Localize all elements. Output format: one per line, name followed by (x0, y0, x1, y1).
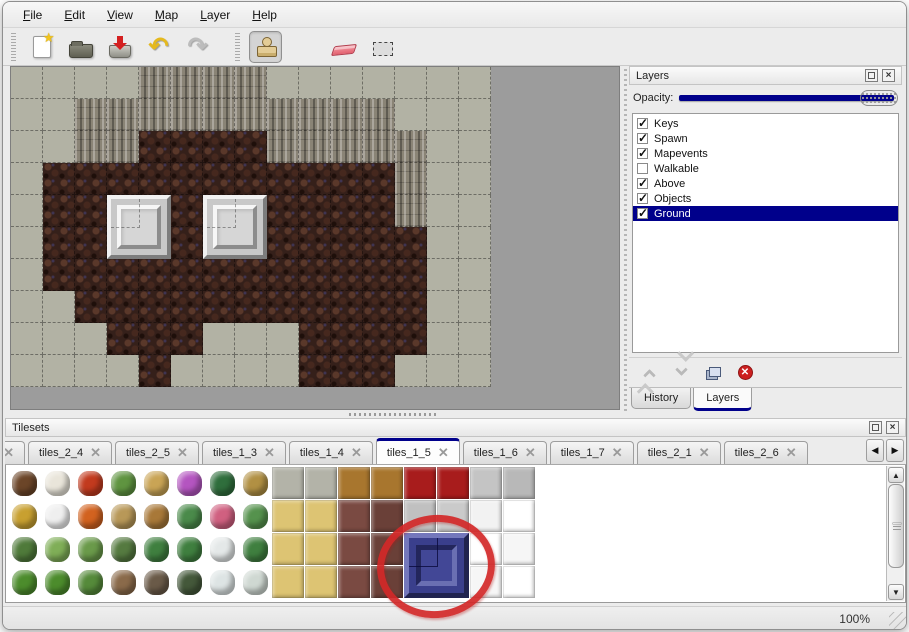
tileset-sprite-cell[interactable] (74, 533, 106, 565)
scale-rock-tile (459, 67, 491, 99)
eraser-icon (330, 43, 356, 55)
brown-floor-tile (331, 355, 363, 387)
brown-floor-tile (299, 163, 331, 195)
brown-floor-tile (139, 131, 171, 163)
cliff-wall-tile (171, 67, 203, 99)
brown-floor-tile (299, 227, 331, 259)
close-tab-icon[interactable]: ✕ (786, 448, 797, 458)
brown-floor-tile (171, 227, 203, 259)
toolbar-handle[interactable] (11, 33, 16, 61)
brown-floor-tile (235, 163, 267, 195)
layer-row-walkable[interactable]: Walkable (633, 161, 898, 176)
brown-floor-tile (299, 259, 331, 291)
map-tile-grid (11, 67, 491, 387)
layer-name: Above (654, 178, 685, 190)
cliff-wall-tile (395, 131, 427, 163)
tileset-sprite-cell[interactable] (8, 467, 40, 499)
cliff-wall-tile (363, 99, 395, 131)
stamp-button[interactable] (249, 31, 282, 63)
layer-action-buttons: ✕ (629, 357, 902, 387)
brown-floor-tile (139, 163, 171, 195)
brown-floor-tile (331, 323, 363, 355)
tileset-tab-tiles_1_4[interactable]: tiles_1_4✕ (289, 441, 373, 464)
scale-rock-tile (427, 163, 459, 195)
move-layer-up-icon[interactable] (639, 363, 659, 383)
scale-rock-tile (43, 291, 75, 323)
brown-floor-tile (43, 163, 75, 195)
tileset-sprite-cell[interactable] (41, 533, 73, 565)
scale-rock-tile (427, 291, 459, 323)
scale-rock-tile (267, 67, 299, 99)
brown-floor-tile (331, 195, 363, 227)
scroll-tabs-right-icon[interactable]: ▶ (886, 439, 904, 462)
tileset-tile-cell[interactable] (503, 500, 535, 532)
cliff-wall-tile (235, 99, 267, 131)
tab-label: tiles_2_1 (648, 447, 692, 459)
scale-rock-tile (427, 355, 459, 387)
scale-rock-tile (43, 355, 75, 387)
tileset-sprite-cell[interactable] (8, 500, 40, 532)
brown-floor-tile (43, 195, 75, 227)
scale-rock-tile (11, 355, 43, 387)
vertical-splitter[interactable] (621, 66, 629, 411)
layer-visibility-checkbox[interactable] (637, 148, 648, 159)
cliff-wall-tile (203, 99, 235, 131)
layer-row-keys[interactable]: Keys (633, 116, 898, 131)
tileset-sprite-cell[interactable] (140, 533, 172, 565)
brown-floor-tile (235, 131, 267, 163)
scale-rock-tile (11, 131, 43, 163)
layer-name: Objects (654, 193, 691, 205)
tileset-sprite-cell[interactable] (140, 500, 172, 532)
scale-rock-tile (395, 67, 427, 99)
brown-floor-tile (235, 291, 267, 323)
scale-rock-tile (267, 323, 299, 355)
tileset-tab-tiles_1_5[interactable]: tiles_1_5✕ (376, 438, 460, 464)
tileset-tab-bar: 3✕tiles_2_4✕tiles_2_5✕tiles_1_3✕tiles_1_… (5, 438, 906, 465)
layer-row-mapevents[interactable]: Mapevents (633, 146, 898, 161)
tab-label: tiles_2_6 (735, 447, 779, 459)
scale-rock-tile (11, 195, 43, 227)
close-tab-icon[interactable]: ✕ (612, 448, 623, 458)
tileset-sprite-cell[interactable] (107, 500, 139, 532)
brown-floor-tile (395, 227, 427, 259)
tileset-sprite-cell[interactable] (173, 566, 205, 598)
layer-row-ground[interactable]: Ground (633, 206, 898, 221)
undo-button[interactable]: ↶ (142, 31, 175, 63)
scale-rock-tile (427, 323, 459, 355)
brown-floor-tile (299, 355, 331, 387)
tilesets-panel-titlebar: Tilesets × (5, 418, 906, 437)
tab-label: tiles_2_4 (39, 447, 83, 459)
cliff-wall-tile (395, 195, 427, 227)
menu-map[interactable]: Map (145, 5, 188, 25)
tileset-scrollbar[interactable]: ▲ ▼ (886, 466, 904, 601)
cliff-wall-tile (331, 99, 363, 131)
tileset-tile-cell[interactable] (272, 500, 304, 532)
opacity-label: Opacity: (633, 92, 673, 104)
cliff-wall-tile (107, 99, 139, 131)
brown-floor-tile (363, 355, 395, 387)
brown-floor-tile (139, 291, 171, 323)
tilesets-panel-title: Tilesets (12, 422, 50, 434)
tileset-tile-cell[interactable] (272, 467, 304, 499)
layer-name: Walkable (654, 163, 699, 175)
selection-rect-icon (373, 42, 393, 56)
scale-rock-tile (363, 67, 395, 99)
open-folder-icon (69, 44, 93, 58)
save-button[interactable] (103, 31, 136, 63)
brown-floor-tile (299, 291, 331, 323)
scale-rock-tile (11, 227, 43, 259)
scroll-up-icon[interactable]: ▲ (888, 467, 904, 483)
tileset-sprite-cell[interactable] (239, 467, 271, 499)
tileset-sprite-cell[interactable] (74, 467, 106, 499)
redo-icon: ↷ (187, 37, 207, 57)
cliff-wall-tile (75, 99, 107, 131)
tab-label: tiles_1_7 (561, 447, 605, 459)
scale-rock-tile (427, 67, 459, 99)
scale-rock-tile (43, 67, 75, 99)
scale-rock-tile (171, 355, 203, 387)
scale-rock-tile (11, 323, 43, 355)
tileset-tile-cell[interactable] (338, 533, 370, 565)
scale-rock-tile (267, 355, 299, 387)
layer-name: Mapevents (654, 148, 708, 160)
float-panel-icon[interactable] (865, 69, 878, 82)
brown-floor-tile (171, 131, 203, 163)
opacity-slider[interactable] (679, 90, 898, 106)
tileset-sprite-cell[interactable] (173, 467, 205, 499)
brown-floor-tile (75, 163, 107, 195)
scale-rock-tile (459, 227, 491, 259)
cliff-wall-tile (75, 131, 107, 163)
scale-rock-tile (427, 259, 459, 291)
cliff-wall-tile (331, 131, 363, 163)
scale-rock-tile (107, 67, 139, 99)
tileset-tile-cell[interactable] (503, 566, 535, 598)
close-tab-icon[interactable]: ✕ (264, 448, 275, 458)
scale-rock-tile (75, 67, 107, 99)
stamp-tool-icon (257, 37, 275, 57)
save-icon (109, 45, 131, 58)
tileset-tile-cell[interactable] (305, 566, 337, 598)
brown-floor-tile (203, 131, 235, 163)
scale-rock-tile (459, 323, 491, 355)
scale-rock-tile (43, 323, 75, 355)
dock-tab-bar: HistoryLayers (629, 387, 902, 411)
close-tab-icon[interactable]: ✕ (90, 448, 101, 458)
scale-rock-tile (459, 99, 491, 131)
brown-floor-tile (171, 195, 203, 227)
scale-rock-tile (235, 323, 267, 355)
tileset-sprite-cell[interactable] (239, 533, 271, 565)
brown-floor-tile (203, 259, 235, 291)
menu-bar: FileEditViewMapLayerHelp (3, 2, 906, 28)
redo-button[interactable]: ↷ (181, 31, 214, 63)
tileset-tile-cell[interactable] (338, 566, 370, 598)
scale-rock-tile (331, 67, 363, 99)
layers-panel: Layers × Opacity: KeysSpawnMapeventsWalk… (629, 66, 902, 411)
tab-label: tiles_1_6 (474, 447, 518, 459)
brown-floor-tile (171, 291, 203, 323)
scale-rock-tile (427, 227, 459, 259)
brown-floor-tile (75, 227, 107, 259)
tileset-tile-cell[interactable] (338, 500, 370, 532)
scale-rock-tile (75, 323, 107, 355)
cliff-wall-tile (139, 67, 171, 99)
layer-name: Keys (654, 118, 678, 130)
cliff-wall-tile (171, 99, 203, 131)
brown-floor-tile (363, 195, 395, 227)
tileset-sprite-cell[interactable] (239, 566, 271, 598)
brown-floor-tile (107, 323, 139, 355)
tileset-sprite-cell[interactable] (74, 500, 106, 532)
map-editor-window: FileEditViewMapLayerHelp ↶↷ Layers × Opa… (2, 1, 907, 630)
tileset-tile-cell[interactable] (470, 467, 502, 499)
cliff-wall-tile (203, 67, 235, 99)
brown-floor-tile (203, 163, 235, 195)
scale-rock-tile (459, 355, 491, 387)
layer-name: Spawn (654, 133, 688, 145)
brown-floor-tile (107, 291, 139, 323)
resize-grip-icon[interactable] (889, 612, 906, 629)
brown-floor-tile (43, 227, 75, 259)
brown-floor-tile (267, 291, 299, 323)
scale-rock-tile (235, 355, 267, 387)
move-layer-down-icon[interactable] (671, 363, 691, 383)
scale-rock-tile (11, 163, 43, 195)
cliff-wall-tile (107, 131, 139, 163)
tab-label: tiles_1_3 (213, 447, 257, 459)
cliff-wall-tile (267, 131, 299, 163)
silver-block-tile (107, 195, 171, 259)
tileset-sprite-cell[interactable] (41, 566, 73, 598)
close-tab-icon[interactable]: ✕ (525, 448, 536, 458)
tileset-tab-tiles_1_3[interactable]: tiles_1_3✕ (202, 441, 286, 464)
layer-list: KeysSpawnMapeventsWalkableAboveObjectsGr… (632, 113, 899, 353)
silver-block-tile (203, 195, 267, 259)
scale-rock-tile (11, 259, 43, 291)
brown-floor-tile (331, 291, 363, 323)
layer-row-spawn[interactable]: Spawn (633, 131, 898, 146)
tileset-sprite-cell[interactable] (173, 500, 205, 532)
tileset-sprite-cell[interactable] (74, 566, 106, 598)
tileset-tile-cell[interactable] (371, 467, 403, 499)
layer-visibility-checkbox[interactable] (637, 118, 648, 129)
tileset-tab-tiles_2_6[interactable]: tiles_2_6✕ (724, 441, 808, 464)
tileset-sprite-cell[interactable] (41, 500, 73, 532)
close-tab-icon[interactable]: ✕ (5, 448, 14, 458)
tileset-sprite-cell[interactable] (206, 533, 238, 565)
brown-floor-tile (331, 259, 363, 291)
brown-floor-tile (75, 259, 107, 291)
tileset-tab-tiles_1_6[interactable]: tiles_1_6✕ (463, 441, 547, 464)
brown-floor-tile (139, 259, 171, 291)
brown-floor-tile (363, 227, 395, 259)
scale-rock-tile (395, 99, 427, 131)
tileset-tile-cell[interactable] (272, 533, 304, 565)
brown-floor-tile (139, 355, 171, 387)
layer-visibility-checkbox[interactable] (637, 208, 648, 219)
close-tab-icon[interactable]: ✕ (351, 448, 362, 458)
tileset-tile-cell[interactable] (305, 500, 337, 532)
tileset-sprite-cell[interactable] (173, 533, 205, 565)
layer-visibility-checkbox[interactable] (637, 193, 648, 204)
brown-floor-tile (171, 323, 203, 355)
brown-floor-tile (331, 227, 363, 259)
tab-label: tiles_1_5 (387, 447, 431, 459)
brown-floor-tile (171, 259, 203, 291)
cliff-wall-tile (235, 67, 267, 99)
scale-rock-tile (459, 163, 491, 195)
scale-rock-tile (11, 291, 43, 323)
tileset-sprite-cell[interactable] (107, 566, 139, 598)
select-button[interactable] (366, 31, 399, 63)
layer-name: Ground (654, 208, 691, 220)
tileset-tab-tiles_1_7[interactable]: tiles_1_7✕ (550, 441, 634, 464)
tileset-sprite-cell[interactable] (206, 467, 238, 499)
layer-visibility-checkbox[interactable] (637, 163, 648, 174)
tab-label: tiles_1_4 (300, 447, 344, 459)
tileset-tab-3[interactable]: 3✕ (5, 441, 25, 464)
duplicate-layer-icon[interactable] (703, 363, 723, 383)
menu-view[interactable]: View (97, 5, 143, 25)
scroll-tabs-left-icon[interactable]: ◀ (866, 439, 884, 462)
menu-file[interactable]: File (13, 5, 52, 25)
layer-row-above[interactable]: Above (633, 176, 898, 191)
fill-button[interactable] (288, 31, 321, 63)
scale-rock-tile (203, 355, 235, 387)
brown-floor-tile (363, 163, 395, 195)
brown-floor-tile (75, 291, 107, 323)
close-tab-icon[interactable]: ✕ (177, 448, 188, 458)
tileset-sprite-cell[interactable] (239, 500, 271, 532)
scale-rock-tile (107, 355, 139, 387)
cliff-wall-tile (299, 131, 331, 163)
tileset-tab-tiles_2_1[interactable]: tiles_2_1✕ (637, 441, 721, 464)
opacity-slider-handle[interactable] (860, 90, 898, 106)
toolbar: ↶↷ (3, 28, 906, 66)
menu-help[interactable]: Help (242, 5, 287, 25)
tileset-tab-tiles_2_5[interactable]: tiles_2_5✕ (115, 441, 199, 464)
scale-rock-tile (395, 355, 427, 387)
undo-icon: ↶ (148, 37, 168, 57)
tileset-sprite-cell[interactable] (8, 566, 40, 598)
tileset-tab-tiles_2_4[interactable]: tiles_2_4✕ (28, 441, 112, 464)
scale-rock-tile (427, 99, 459, 131)
tileset-tile-cell[interactable] (503, 467, 535, 499)
cliff-wall-tile (299, 99, 331, 131)
scale-rock-tile (203, 323, 235, 355)
new-file-icon (33, 36, 51, 58)
scale-rock-tile (459, 291, 491, 323)
new-button[interactable] (25, 31, 58, 63)
tileset-tile-cell[interactable] (404, 467, 436, 499)
close-panel-icon[interactable]: × (886, 421, 899, 434)
dock-tab-layers[interactable]: Layers (693, 388, 752, 411)
cliff-wall-tile (395, 163, 427, 195)
tileset-sprite-cell[interactable] (41, 467, 73, 499)
brown-floor-tile (395, 323, 427, 355)
menu-layer[interactable]: Layer (190, 5, 240, 25)
tileset-sprite-cell[interactable] (140, 566, 172, 598)
open-button[interactable] (64, 31, 97, 63)
layer-visibility-checkbox[interactable] (637, 133, 648, 144)
tileset-sprite-cell[interactable] (206, 500, 238, 532)
brown-floor-tile (107, 163, 139, 195)
tileset-tile-cell[interactable] (305, 467, 337, 499)
tileset-sprite-cell[interactable] (140, 467, 172, 499)
tileset-sprite-cell[interactable] (107, 533, 139, 565)
horizontal-splitter[interactable] (3, 411, 907, 418)
tileset-tile-cell[interactable] (272, 566, 304, 598)
close-tab-icon[interactable]: ✕ (438, 448, 449, 458)
layers-panel-titlebar: Layers × (629, 66, 902, 85)
scale-rock-tile (11, 99, 43, 131)
zoom-level: 100% (839, 612, 870, 626)
brown-floor-tile (363, 291, 395, 323)
scale-rock-tile (299, 67, 331, 99)
brown-floor-tile (267, 227, 299, 259)
map-canvas[interactable] (10, 66, 620, 410)
float-panel-icon[interactable] (869, 421, 882, 434)
scrollbar-thumb[interactable] (888, 484, 904, 568)
layers-panel-title: Layers (636, 70, 669, 82)
tileset-tile-cell[interactable] (437, 467, 469, 499)
brown-floor-tile (395, 259, 427, 291)
scroll-down-icon[interactable]: ▼ (888, 584, 904, 600)
brown-floor-tile (299, 195, 331, 227)
cliff-wall-tile (267, 99, 299, 131)
delete-layer-icon[interactable]: ✕ (735, 363, 755, 383)
tileset-tile-cell[interactable] (338, 467, 370, 499)
eraser-button[interactable] (327, 31, 360, 63)
layer-row-objects[interactable]: Objects (633, 191, 898, 206)
brown-floor-tile (75, 195, 107, 227)
scale-rock-tile (427, 195, 459, 227)
tileset-sprite-cell[interactable] (8, 533, 40, 565)
tileset-tile-cell[interactable] (305, 533, 337, 565)
tileset-sprite-cell[interactable] (206, 566, 238, 598)
menu-edit[interactable]: Edit (54, 5, 95, 25)
scale-rock-tile (11, 67, 43, 99)
brown-floor-tile (363, 259, 395, 291)
brown-floor-tile (203, 291, 235, 323)
brown-floor-tile (331, 163, 363, 195)
tab-label: tiles_2_5 (126, 447, 170, 459)
brown-floor-tile (267, 259, 299, 291)
cliff-wall-tile (139, 99, 171, 131)
brown-floor-tile (139, 323, 171, 355)
brown-floor-tile (43, 259, 75, 291)
scale-rock-tile (43, 99, 75, 131)
brown-floor-tile (395, 291, 427, 323)
layer-visibility-checkbox[interactable] (637, 178, 648, 189)
scale-rock-tile (459, 195, 491, 227)
brown-floor-tile (267, 195, 299, 227)
brown-floor-tile (363, 323, 395, 355)
toolbar-handle[interactable] (235, 33, 240, 61)
close-panel-icon[interactable]: × (882, 69, 895, 82)
tileset-tile-cell[interactable] (503, 533, 535, 565)
tileset-sprite-cell[interactable] (107, 467, 139, 499)
scale-rock-tile (459, 131, 491, 163)
scale-rock-tile (459, 259, 491, 291)
brown-floor-tile (299, 323, 331, 355)
scale-rock-tile (427, 131, 459, 163)
close-tab-icon[interactable]: ✕ (699, 448, 710, 458)
